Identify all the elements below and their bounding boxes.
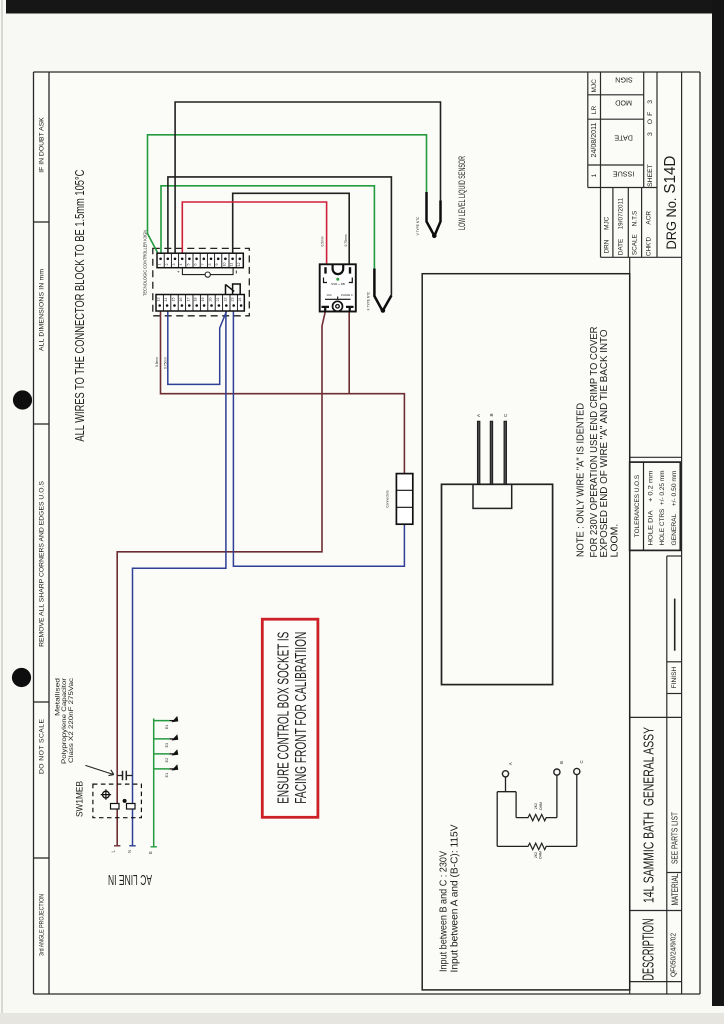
svg-text:AC LINE IN: AC LINE IN (108, 871, 152, 887)
svg-text:0.75mm: 0.75mm (163, 357, 167, 369)
svg-text:2: 2 (165, 264, 169, 266)
svg-text:OHM: OHM (539, 851, 543, 859)
svg-text:ENSURE CONTROL BOX SOCKET IS: ENSURE CONTROL BOX SOCKET IS (275, 632, 292, 804)
svg-text:21: 21 (216, 298, 220, 302)
svg-text:FINISH: FINISH (671, 666, 678, 688)
svg-text:0.5mm: 0.5mm (320, 236, 324, 246)
svg-text:SCALE: SCALE (632, 234, 639, 255)
svg-text:SHEET: SHEET (647, 164, 654, 187)
svg-text:EXPOSED END OF WIRE "A" AND TI: EXPOSED END OF WIRE "A" AND TIE BACK INT… (598, 330, 610, 558)
svg-text:TOLERANCES U.O.S: TOLERANCES U.O.S (634, 475, 641, 537)
svg-text:24/08/2011: 24/08/2011 (591, 122, 598, 157)
svg-text:0.75mm: 0.75mm (344, 234, 348, 246)
svg-text:ACR: ACR (646, 211, 653, 225)
svg-text:14: 14 (164, 298, 168, 302)
svg-text:S14D: S14D (662, 156, 679, 194)
svg-text:E3: E3 (165, 743, 169, 747)
svg-text:LOOM.: LOOM. (609, 524, 621, 558)
svg-text:LOW LEVEL LIQUID SENSOR: LOW LEVEL LIQUID SENSOR (457, 156, 467, 230)
svg-text:13: 13 (157, 298, 161, 302)
svg-text:A: A (508, 762, 513, 765)
svg-text:DATE: DATE (614, 133, 633, 142)
svg-text:2K2: 2K2 (534, 852, 538, 858)
svg-text:E4: E4 (165, 725, 169, 729)
svg-text:20: 20 (209, 298, 213, 302)
svg-text:5: 5 (186, 264, 190, 266)
svg-text:14L SAMMIC BATH GENERAL ASSY: 14L SAMMIC BATH GENERAL ASSY (641, 727, 658, 903)
svg-text:SSR + RB: SSR + RB (331, 282, 345, 286)
svg-text:12: 12 (237, 263, 241, 267)
svg-text:1: 1 (158, 264, 162, 266)
svg-text:DATE: DATE (617, 239, 624, 256)
svg-text:N: N (127, 850, 132, 853)
svg-text:Input between B and C : 230V: Input between B and C : 230V (439, 851, 450, 972)
svg-text:Connectors: Connectors (385, 490, 389, 508)
svg-text:3rd ANGLE PROJECTION: 3rd ANGLE PROJECTION (38, 894, 45, 956)
svg-text:24: 24 (238, 298, 242, 302)
svg-text:2K2: 2K2 (534, 803, 538, 809)
svg-text:DRG No.: DRG No. (663, 198, 679, 250)
svg-text:DESCRIPTION: DESCRIPTION (641, 919, 658, 981)
svg-text:B: B (559, 761, 564, 764)
svg-text:1: 1 (591, 173, 598, 177)
svg-text:REMOVE ALL SHARP CORNERS AND E: REMOVE ALL SHARP CORNERS AND EDGES U.O.S (38, 481, 45, 647)
svg-text:E: E (148, 851, 153, 854)
svg-text:Input between A and (B-C): 115: Input between A and (B-C): 115V (450, 824, 461, 972)
svg-text:16: 16 (179, 298, 183, 302)
svg-text:MJC: MJC (603, 216, 610, 230)
svg-text:ALL WIRES TO THE CONNECTOR BLO: ALL WIRES TO THE CONNECTOR BLOCK TO BE 1… (73, 170, 87, 442)
svg-text:18: 18 (194, 298, 198, 302)
svg-text:11: 11 (230, 263, 234, 267)
svg-text:ALL DIMENSIONS IN mm: ALL DIMENSIONS IN mm (38, 269, 45, 351)
svg-text:4: 4 (179, 264, 183, 266)
svg-text:QF050/24/9/02: QF050/24/9/02 (668, 933, 677, 977)
svg-text:TECNOLOGIC CONTROLLER K3GN: TECNOLOGIC CONTROLLER K3GN (143, 230, 148, 296)
svg-text:FACING FRONT FOR CALIBRATIION: FACING FRONT FOR CALIBRATIION (293, 632, 310, 804)
svg-text:DRN: DRN (603, 239, 610, 253)
svg-text:E2: E2 (165, 758, 169, 762)
svg-text:8: 8 (208, 264, 212, 266)
svg-text:15: 15 (172, 298, 176, 302)
svg-text:IF IN DOUBT ASK: IF IN DOUBT ASK (38, 117, 45, 173)
svg-text:VAC: VAC (327, 293, 332, 297)
svg-text:10: 10 (222, 263, 226, 267)
svg-text:17: 17 (186, 298, 190, 302)
svg-text:SEE PARTS LIST: SEE PARTS LIST (670, 812, 679, 864)
svg-text:Class X2 220nF 275Vac: Class X2 220nF 275Vac (68, 678, 75, 763)
svg-text:9: 9 (215, 264, 219, 266)
svg-text:N.T.S: N.T.S (632, 211, 639, 227)
svg-text:OHM: OHM (539, 802, 543, 810)
svg-text:C: C (579, 760, 584, 763)
svg-text:19: 19 (201, 298, 205, 302)
svg-text:MOD: MOD (615, 99, 632, 108)
svg-text:B: B (489, 413, 494, 416)
svg-text:19/07/2011: 19/07/2011 (617, 197, 624, 229)
svg-text:V TYPE NTC: V TYPE NTC (416, 216, 420, 235)
svg-text:HOLE DIA + 0.2 mm: HOLE DIA + 0.2 mm (647, 471, 654, 546)
svg-text:NOTE : ONLY WIRE "A" IS IDENTE: NOTE : ONLY WIRE "A" IS IDENTED (575, 403, 587, 557)
svg-text:SW1MEB: SW1MEB (75, 781, 86, 817)
svg-text:K TYPE NTC: K TYPE NTC (366, 291, 370, 310)
svg-text:MATERIAL: MATERIAL (670, 874, 680, 906)
svg-text:SIGN: SIGN (615, 76, 633, 85)
svg-text:CHK'D: CHK'D (646, 236, 653, 256)
svg-text:ISSUE: ISSUE (613, 169, 635, 178)
svg-text:3: 3 (172, 264, 176, 266)
svg-text:DO NOT SCALE: DO NOT SCALE (38, 719, 45, 774)
svg-text:GENERAL +/- 0.50 mm: GENERAL +/- 0.50 mm (671, 471, 678, 546)
svg-text:PHASE C: PHASE C (341, 293, 353, 297)
svg-text:23: 23 (231, 298, 235, 302)
svg-text:+: + (176, 270, 181, 273)
svg-text:0.5mm: 0.5mm (155, 357, 159, 367)
svg-text:MJC: MJC (591, 79, 598, 93)
svg-text:E1: E1 (165, 773, 169, 777)
svg-text:6: 6 (194, 264, 198, 266)
svg-text:7: 7 (201, 264, 205, 266)
svg-text:HOLE CTRS +/- 0.25 mm: HOLE CTRS +/- 0.25 mm (659, 471, 666, 546)
svg-text:22: 22 (223, 298, 227, 302)
svg-text:LR: LR (591, 106, 598, 115)
